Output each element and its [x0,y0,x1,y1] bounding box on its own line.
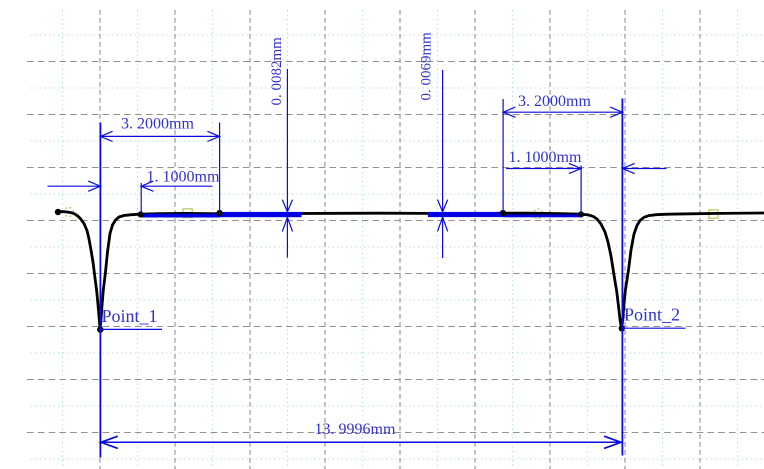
svg-text:Point_2: Point_2 [624,305,680,325]
svg-text:1. 1000mm: 1. 1000mm [509,149,582,166]
svg-text:0. 0082mm: 0. 0082mm [269,37,285,106]
svg-text:13. 9996mm: 13. 9996mm [315,421,396,438]
svg-text:Point_1: Point_1 [102,306,158,326]
svg-text:3. 2000mm: 3. 2000mm [121,116,194,133]
svg-text:3. 2000mm: 3. 2000mm [518,93,591,110]
svg-text:0. 0069mm: 0. 0069mm [419,32,435,101]
svg-text:1. 1000mm: 1. 1000mm [147,168,220,185]
